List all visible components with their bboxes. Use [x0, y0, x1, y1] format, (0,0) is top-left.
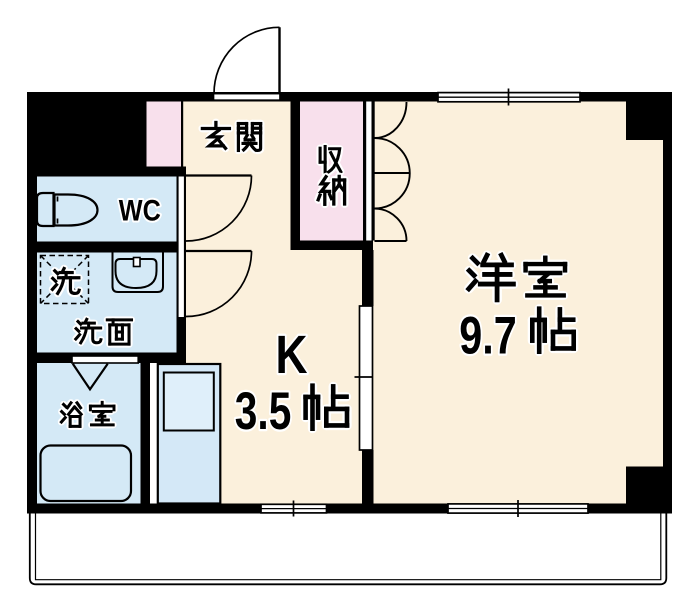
svg-text:K: K: [276, 325, 308, 385]
svg-text:3.5: 3.5: [235, 382, 291, 441]
svg-text:WC: WC: [119, 195, 161, 228]
svg-text:9.7: 9.7: [459, 307, 517, 366]
